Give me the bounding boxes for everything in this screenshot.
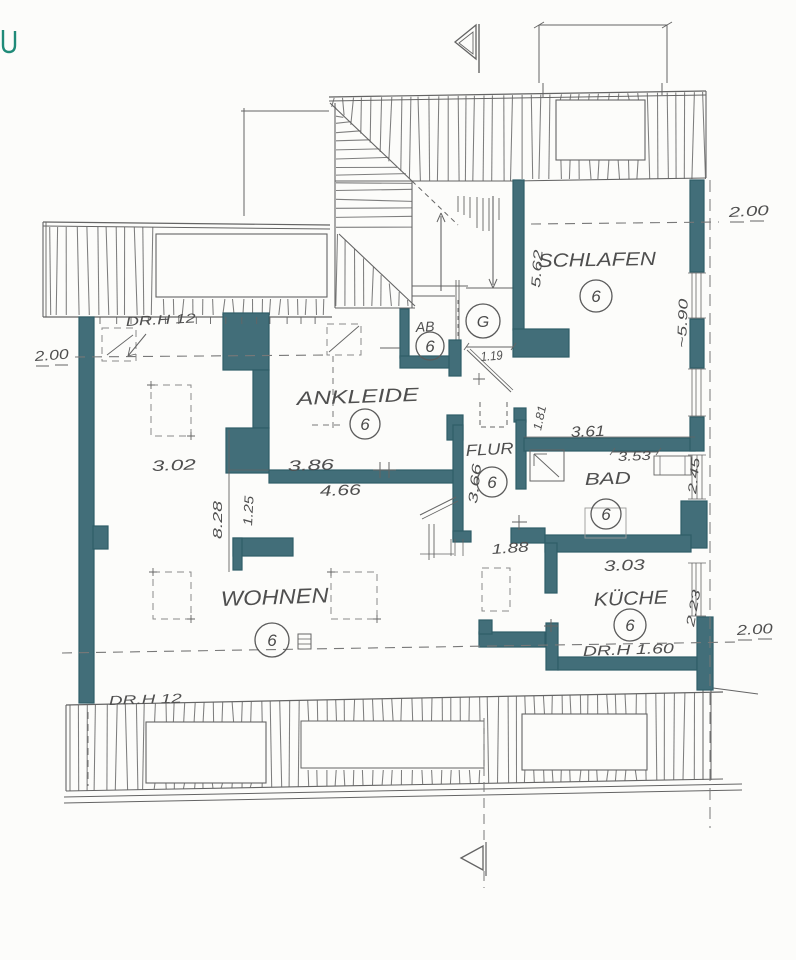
svg-text:3.86: 3.86 [288, 456, 336, 475]
svg-text:5.62: 5.62 [528, 248, 546, 288]
svg-text:6: 6 [425, 337, 435, 356]
svg-text:3.53: 3.53 [618, 448, 652, 464]
svg-text:8.28: 8.28 [210, 500, 225, 539]
svg-text:2.00: 2.00 [735, 620, 773, 638]
svg-text:6: 6 [591, 287, 601, 306]
svg-text:BAD: BAD [584, 468, 631, 489]
svg-text:6: 6 [267, 631, 277, 650]
svg-text:DR.H 12: DR.H 12 [109, 690, 184, 708]
svg-text:G: G [477, 314, 489, 331]
svg-text:3.02: 3.02 [152, 456, 198, 475]
svg-text:WOHNEN: WOHNEN [220, 584, 330, 611]
svg-text:FLUR: FLUR [465, 440, 514, 460]
svg-text:4.66: 4.66 [320, 482, 362, 500]
svg-text:SCHLAFEN: SCHLAFEN [538, 249, 657, 272]
svg-text:1.88: 1.88 [491, 538, 529, 557]
svg-text:6: 6 [360, 415, 370, 434]
svg-text:KÜCHE: KÜCHE [593, 587, 668, 611]
svg-text:~5.90: ~5.90 [674, 297, 691, 348]
svg-text:6: 6 [601, 505, 611, 524]
svg-text:1.25: 1.25 [240, 495, 257, 527]
svg-text:1.19: 1.19 [480, 347, 503, 363]
svg-text:6: 6 [487, 473, 497, 492]
svg-text:2.00: 2.00 [727, 202, 770, 220]
svg-text:3.61: 3.61 [571, 423, 606, 441]
svg-text:3.03: 3.03 [604, 557, 646, 575]
svg-text:6: 6 [625, 616, 635, 635]
svg-text:DR.H 1.60: DR.H 1.60 [583, 640, 675, 659]
svg-text:ANKLEIDE: ANKLEIDE [295, 385, 419, 410]
svg-text:2.00: 2.00 [33, 346, 70, 364]
